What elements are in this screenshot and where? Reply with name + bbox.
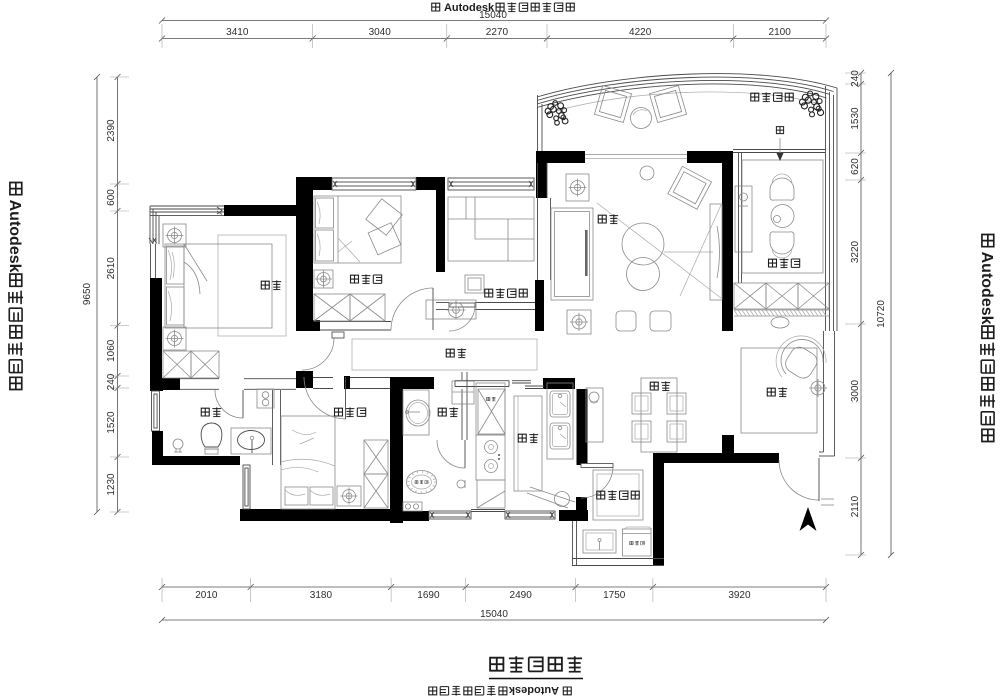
svg-text:2270: 2270 [486, 27, 509, 38]
svg-text:1690: 1690 [417, 590, 440, 601]
svg-text:15040: 15040 [479, 10, 507, 21]
svg-text:620: 620 [850, 158, 861, 175]
svg-text:1750: 1750 [603, 590, 626, 601]
svg-text:2110: 2110 [850, 495, 861, 517]
svg-text:3180: 3180 [310, 590, 333, 601]
svg-text:1530: 1530 [850, 107, 861, 130]
svg-text:15040: 15040 [480, 609, 508, 620]
svg-text:3220: 3220 [850, 240, 861, 263]
svg-text:1060: 1060 [106, 339, 117, 362]
svg-text:Autodesk: Autodesk [978, 252, 995, 325]
svg-text:3040: 3040 [369, 27, 392, 38]
svg-text:1520: 1520 [106, 411, 117, 434]
svg-text:3410: 3410 [226, 27, 249, 38]
svg-text:Autodesk: Autodesk [6, 200, 23, 273]
svg-text:3920: 3920 [728, 590, 751, 601]
svg-text:240: 240 [106, 373, 117, 390]
svg-text:2610: 2610 [106, 257, 117, 280]
svg-text:10720: 10720 [876, 300, 887, 328]
svg-text:3000: 3000 [850, 379, 861, 402]
svg-text:600: 600 [106, 189, 117, 206]
svg-text:4220: 4220 [629, 27, 652, 38]
svg-text:2490: 2490 [510, 590, 533, 601]
svg-text:2390: 2390 [106, 119, 117, 142]
svg-text:1230: 1230 [106, 473, 117, 496]
svg-text:240: 240 [850, 70, 861, 87]
svg-text:2100: 2100 [769, 27, 792, 38]
svg-text:2010: 2010 [195, 590, 218, 601]
svg-text:Autodesk: Autodesk [508, 684, 559, 696]
svg-text:9650: 9650 [82, 282, 93, 305]
